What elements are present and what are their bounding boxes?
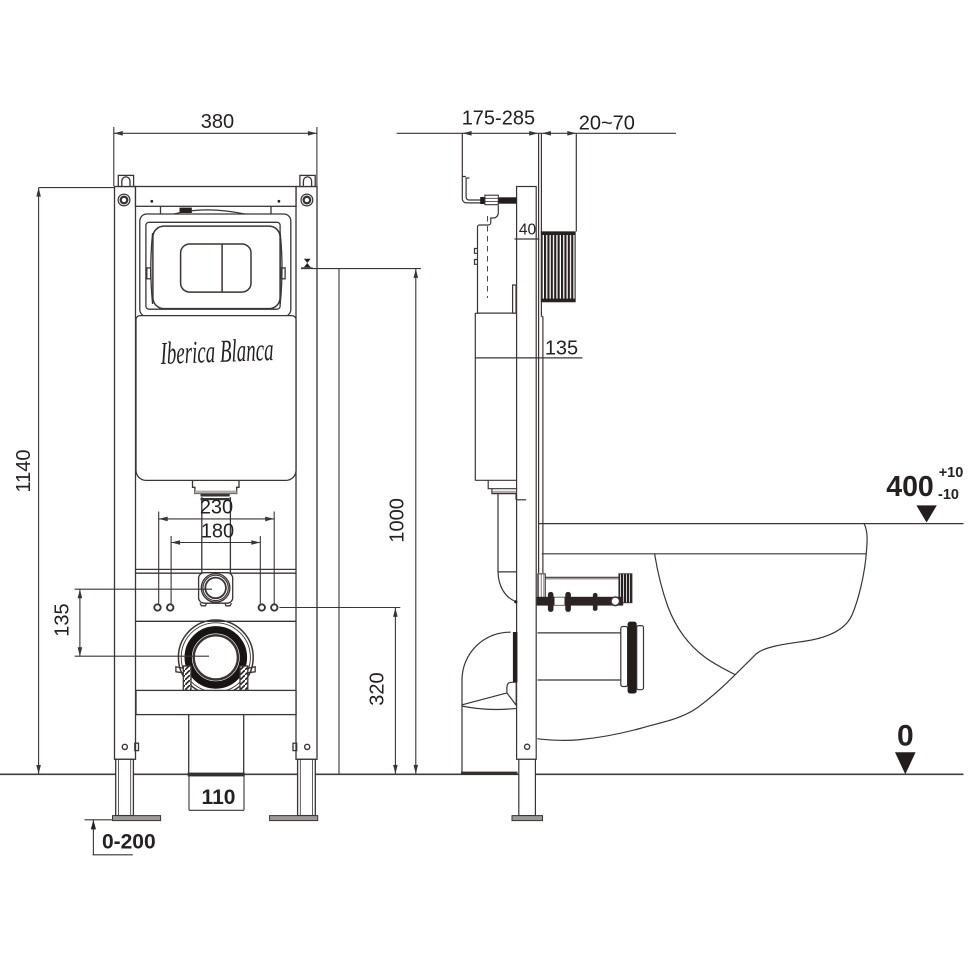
svg-text:400: 400 <box>886 471 934 503</box>
svg-text:40: 40 <box>519 222 537 239</box>
svg-text:380: 380 <box>201 111 234 133</box>
svg-text:20~70: 20~70 <box>579 113 635 135</box>
svg-text:135: 135 <box>545 338 578 360</box>
svg-text:110: 110 <box>202 786 236 809</box>
svg-text:180: 180 <box>201 521 234 543</box>
svg-text:175-285: 175-285 <box>462 108 535 130</box>
svg-text:320: 320 <box>367 672 389 705</box>
svg-text:230: 230 <box>200 497 233 519</box>
svg-text:0-200: 0-200 <box>102 831 156 854</box>
svg-text:135: 135 <box>51 603 73 636</box>
svg-text:1000: 1000 <box>386 498 408 543</box>
svg-text:Iberica Blanca: Iberica Blanca <box>159 331 274 371</box>
svg-text:-10: -10 <box>938 487 959 503</box>
svg-text:+10: +10 <box>939 465 964 481</box>
svg-text:0: 0 <box>897 719 914 752</box>
svg-text:1140: 1140 <box>13 449 35 492</box>
